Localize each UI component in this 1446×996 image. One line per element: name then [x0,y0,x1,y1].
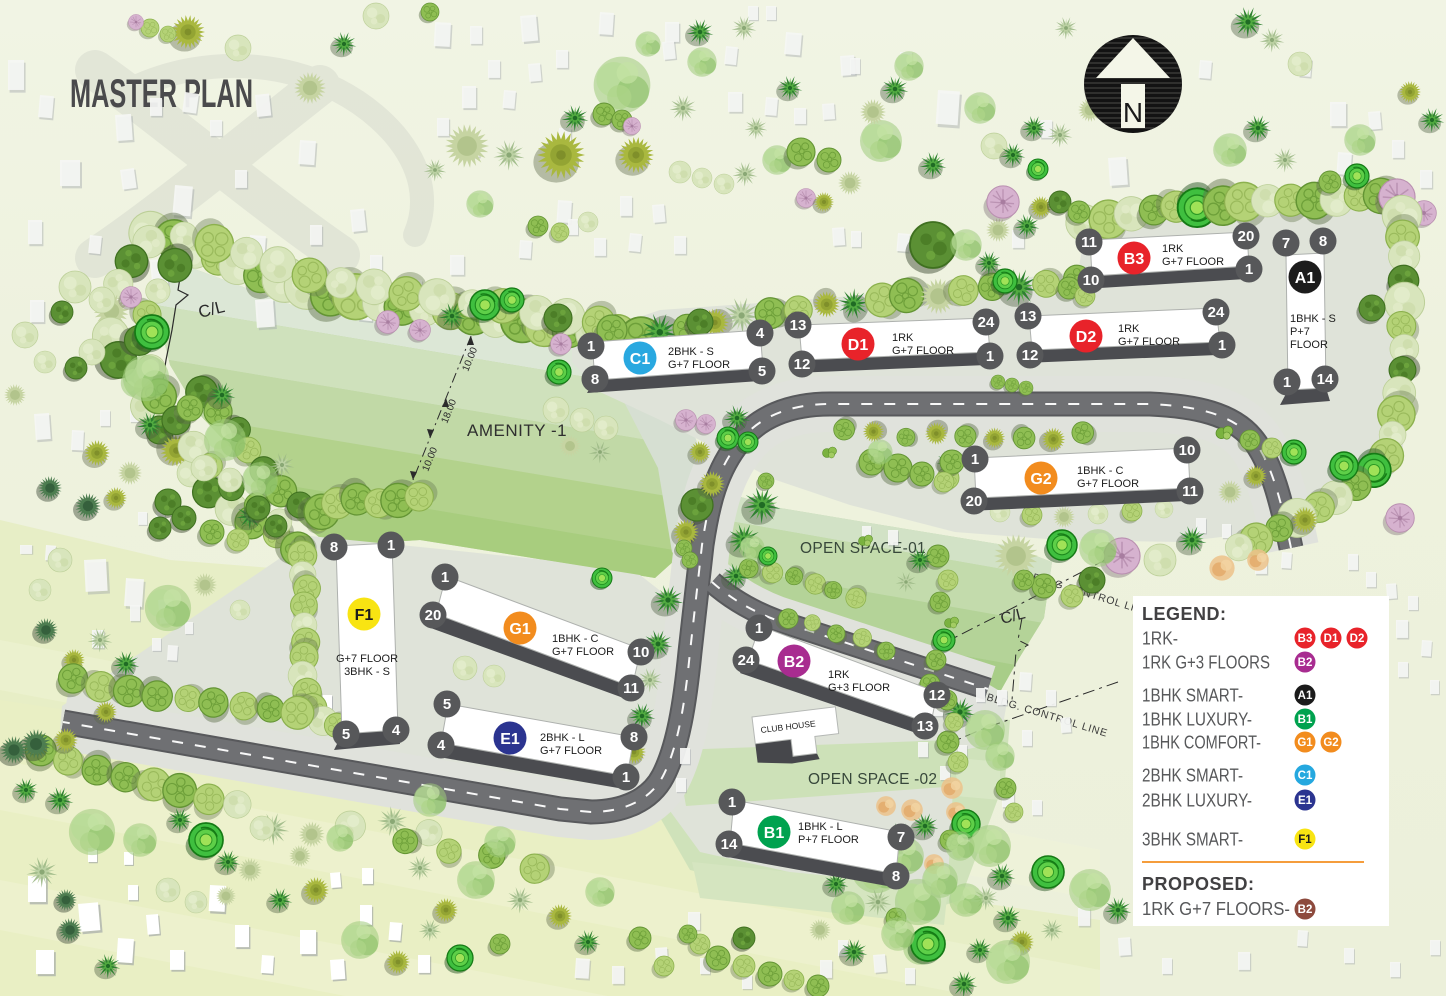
svg-text:11: 11 [623,680,639,697]
svg-text:4: 4 [392,722,401,739]
svg-text:1RK G+7 FLOORS-: 1RK G+7 FLOORS- [1142,899,1290,919]
svg-text:D1: D1 [848,337,869,354]
svg-text:8: 8 [330,539,338,556]
svg-text:20: 20 [966,493,983,510]
svg-text:1RK-: 1RK- [1142,629,1178,649]
svg-text:B2: B2 [784,654,805,671]
svg-text:2BHK - S: 2BHK - S [668,346,714,358]
svg-text:2BHK - L: 2BHK - L [540,732,585,744]
svg-text:5: 5 [758,363,766,380]
svg-text:8: 8 [892,868,900,885]
svg-text:G+3 FLOOR: G+3 FLOOR [828,682,890,694]
svg-text:1: 1 [728,794,736,811]
svg-text:1RK G+3 FLOORS: 1RK G+3 FLOORS [1142,653,1270,673]
svg-text:8: 8 [591,371,599,388]
svg-text:1: 1 [1218,337,1226,354]
svg-text:G1: G1 [1297,737,1313,749]
svg-text:1: 1 [1245,261,1253,278]
svg-text:G+7 FLOOR: G+7 FLOOR [892,345,954,357]
svg-text:1: 1 [587,338,595,355]
svg-text:20: 20 [425,607,442,624]
svg-text:G+7 FLOOR: G+7 FLOOR [1077,478,1139,490]
svg-text:10: 10 [633,644,650,661]
svg-text:1: 1 [971,451,979,468]
svg-text:G+7 FLOOR: G+7 FLOOR [1162,256,1224,268]
svg-text:D2: D2 [1076,329,1097,346]
svg-text:C1: C1 [1298,770,1313,782]
svg-text:P+7: P+7 [1290,326,1310,338]
svg-text:1RK: 1RK [1162,243,1184,255]
svg-text:4: 4 [756,325,765,342]
svg-text:1BHK - L: 1BHK - L [798,821,843,833]
svg-text:FLOOR: FLOOR [1290,339,1328,351]
svg-text:E1: E1 [1298,795,1313,807]
svg-text:13: 13 [917,718,934,735]
svg-text:14: 14 [721,836,738,853]
svg-text:PROPOSED:: PROPOSED: [1142,874,1255,894]
svg-text:1BHK - C: 1BHK - C [552,633,599,645]
svg-text:G+7 FLOOR: G+7 FLOOR [1118,336,1180,348]
svg-text:13: 13 [1020,308,1037,325]
svg-text:1: 1 [441,569,449,586]
svg-text:1: 1 [1283,374,1291,391]
svg-text:20: 20 [1238,228,1255,245]
svg-text:D2: D2 [1350,633,1365,645]
svg-text:1RK: 1RK [828,669,850,681]
svg-text:E1: E1 [500,731,520,748]
svg-text:B2: B2 [1298,657,1313,669]
svg-text:2BHK SMART-: 2BHK SMART- [1142,766,1243,786]
svg-text:G+7 FLOOR: G+7 FLOOR [540,745,602,757]
svg-text:A1: A1 [1295,270,1316,287]
svg-text:24: 24 [1208,304,1225,321]
svg-text:B2: B2 [1298,904,1313,916]
svg-text:5: 5 [443,696,451,713]
svg-text:2BHK LUXURY-: 2BHK LUXURY- [1142,791,1252,811]
svg-text:3BHK - S: 3BHK - S [344,666,390,678]
svg-text:4: 4 [437,737,446,754]
svg-text:C1: C1 [630,351,651,368]
svg-text:11: 11 [1081,234,1097,251]
svg-text:G1: G1 [509,621,530,638]
svg-text:B1: B1 [1298,714,1313,726]
svg-text:AMENITY -1: AMENITY -1 [467,421,567,440]
svg-text:1BHK COMFORT-: 1BHK COMFORT- [1142,733,1261,753]
svg-text:1RK: 1RK [1118,323,1140,335]
svg-text:8: 8 [1319,233,1327,250]
svg-text:11: 11 [1182,483,1198,500]
svg-text:5: 5 [342,726,350,743]
svg-text:G+7 FLOOR: G+7 FLOOR [336,653,398,665]
svg-text:N: N [1123,97,1143,128]
svg-text:7: 7 [897,829,905,846]
svg-text:F1: F1 [355,607,374,624]
svg-text:P+7 FLOOR: P+7 FLOOR [798,834,859,846]
svg-text:1BHK - S: 1BHK - S [1290,313,1336,325]
svg-text:G+7 FLOOR: G+7 FLOOR [668,359,730,371]
svg-text:B3: B3 [1124,251,1145,268]
svg-text:LEGEND:: LEGEND: [1142,604,1227,624]
svg-text:1: 1 [622,769,630,786]
svg-text:1: 1 [986,348,994,365]
svg-text:G+7 FLOOR: G+7 FLOOR [552,646,614,658]
svg-text:13: 13 [790,317,807,334]
svg-text:G2: G2 [1323,737,1338,749]
svg-text:3BHK SMART-: 3BHK SMART- [1142,830,1243,850]
svg-text:8: 8 [630,729,638,746]
svg-text:12: 12 [1022,347,1039,364]
svg-text:B3: B3 [1298,633,1313,645]
svg-text:1BHK SMART-: 1BHK SMART- [1142,686,1243,706]
svg-text:24: 24 [978,314,995,331]
svg-text:A1: A1 [1298,690,1313,702]
svg-text:OPEN SPACE -02: OPEN SPACE -02 [808,771,937,788]
svg-text:24: 24 [738,652,755,669]
svg-text:D1: D1 [1324,633,1339,645]
svg-text:F1: F1 [1298,834,1312,846]
svg-text:1BHK LUXURY-: 1BHK LUXURY- [1142,710,1252,730]
svg-text:1RK: 1RK [892,332,914,344]
svg-text:14: 14 [1317,371,1334,388]
svg-text:G2: G2 [1030,471,1051,488]
svg-text:10: 10 [1179,442,1196,459]
svg-text:1: 1 [387,537,395,554]
svg-text:7: 7 [1282,235,1290,252]
svg-text:1BHK - C: 1BHK - C [1077,465,1124,477]
svg-text:1: 1 [755,620,763,637]
svg-text:12: 12 [794,356,811,373]
svg-text:10: 10 [1083,272,1100,289]
svg-text:12: 12 [929,687,946,704]
svg-text:B1: B1 [764,825,785,842]
